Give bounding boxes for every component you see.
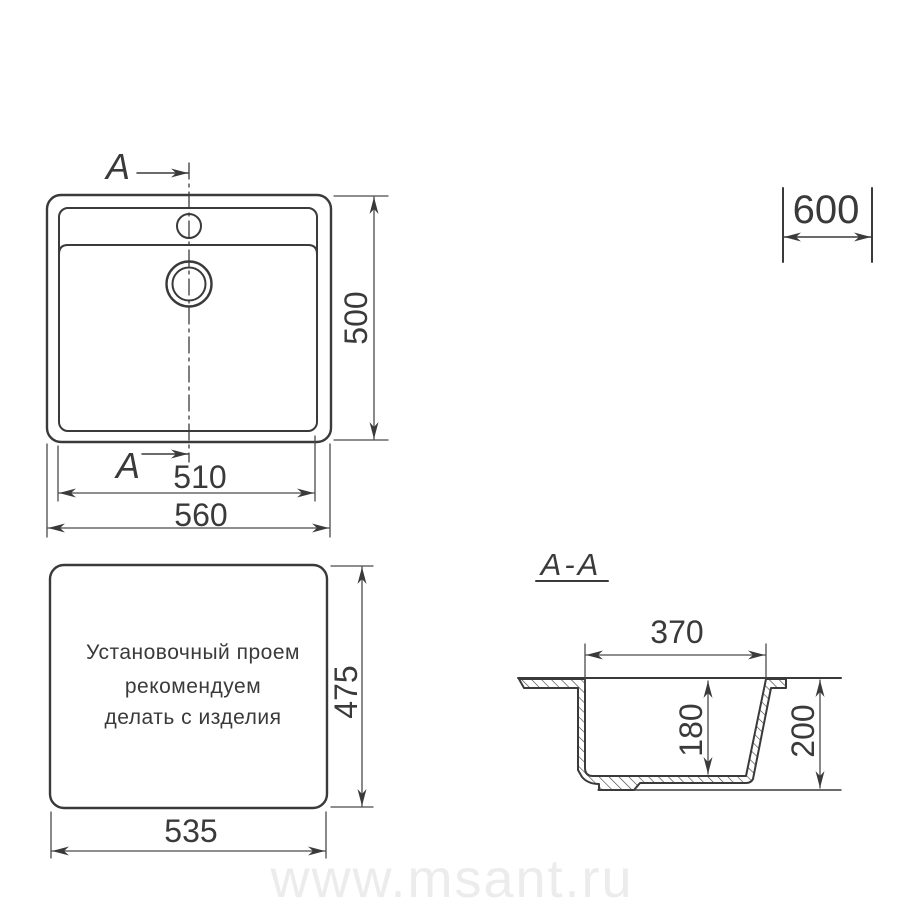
- bowl-cross-section: [519, 679, 786, 790]
- sink-technical-drawing: A A 500 510 560 600 Установочный проем р…: [0, 0, 900, 900]
- dim-label-600: 600: [756, 190, 896, 230]
- section-title-label: A-A: [511, 549, 631, 580]
- bowl-deck-line: [59, 245, 317, 254]
- dim-label-560: 560: [141, 499, 261, 531]
- cutout-note-line1: Установочный проем: [43, 642, 343, 663]
- sink-inner-rim: [59, 208, 317, 431]
- dim-label-200: 200: [786, 671, 820, 791]
- top-view-drawing: [47, 163, 331, 462]
- dim-label-370: 370: [617, 616, 737, 648]
- cutout-note-line2: рекомендуем: [43, 676, 343, 697]
- dim-label-475: 475: [329, 632, 363, 752]
- cutout-note-line3: делать с изделия: [43, 707, 343, 728]
- watermark-text: www.msant.ru: [152, 852, 752, 900]
- dim-label-535: 535: [131, 815, 251, 847]
- dim-label-500: 500: [339, 258, 373, 378]
- section-arrow-label-top: A: [98, 149, 138, 185]
- dim-label-180: 180: [674, 670, 708, 790]
- dim-label-510: 510: [140, 461, 260, 493]
